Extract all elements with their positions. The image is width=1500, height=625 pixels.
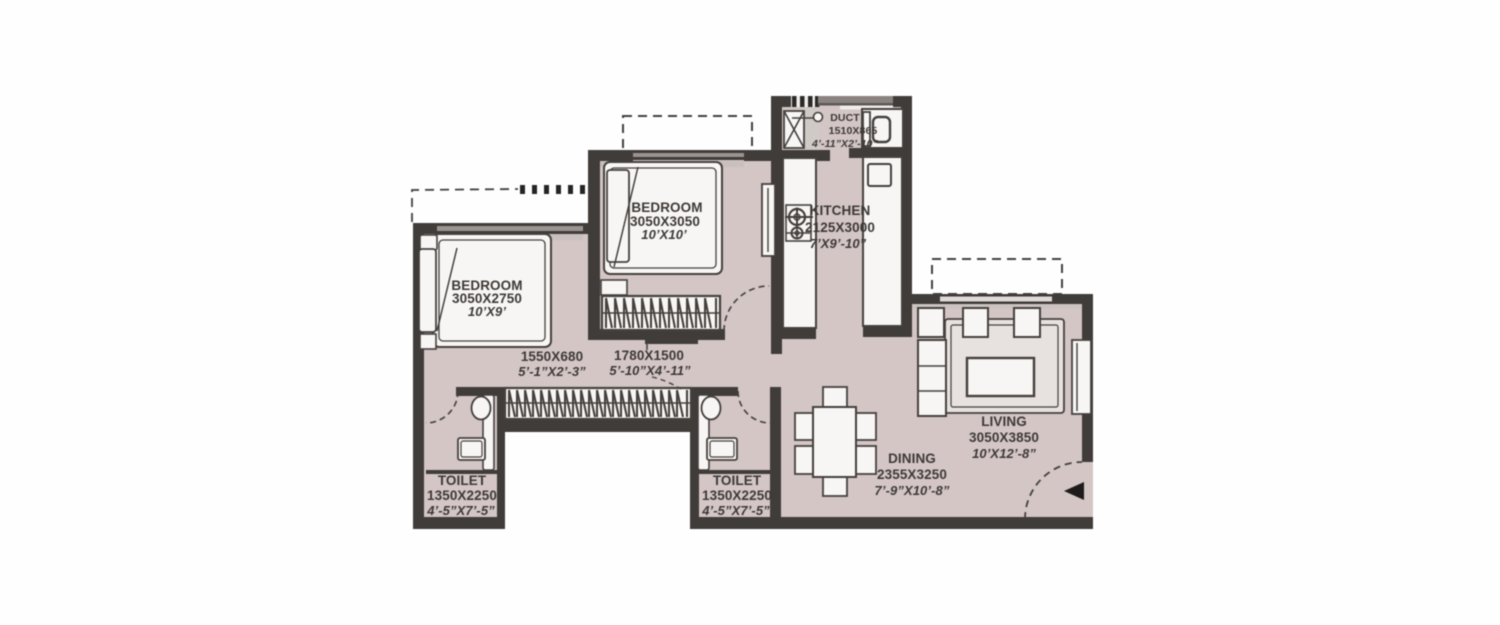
svg-text:5’-10”X4’-11”: 5’-10”X4’-11” bbox=[609, 363, 691, 378]
svg-text:10’X10’: 10’X10’ bbox=[641, 227, 687, 242]
svg-text:TOILET: TOILET bbox=[438, 473, 487, 488]
svg-text:2355X3250: 2355X3250 bbox=[877, 467, 947, 482]
svg-text:1350X2250: 1350X2250 bbox=[702, 488, 772, 503]
svg-text:10’X12’-8”: 10’X12’-8” bbox=[972, 446, 1036, 461]
svg-text:1350X2250: 1350X2250 bbox=[427, 488, 497, 503]
svg-text:5’-1”X2’-3”: 5’-1”X2’-3” bbox=[518, 364, 586, 379]
svg-text:4’-11”X2’-10”: 4’-11”X2’-10” bbox=[811, 138, 879, 150]
svg-text:1550X680: 1550X680 bbox=[521, 349, 583, 364]
svg-text:4’-5”X7’-5”: 4’-5”X7’-5” bbox=[701, 503, 770, 518]
svg-text:4’-5”X7’-5”: 4’-5”X7’-5” bbox=[426, 503, 495, 518]
svg-text:DINING: DINING bbox=[888, 451, 936, 466]
svg-text:BEDROOM: BEDROOM bbox=[631, 200, 702, 215]
svg-text:DUCT: DUCT bbox=[830, 112, 860, 124]
svg-text:7’X9’-10”: 7’X9’-10” bbox=[810, 236, 867, 251]
svg-text:3050X3850: 3050X3850 bbox=[969, 430, 1039, 445]
svg-text:7’-9”X10’-8”: 7’-9”X10’-8” bbox=[875, 483, 950, 498]
svg-text:1510X865: 1510X865 bbox=[829, 125, 878, 137]
svg-text:10’X9’: 10’X9’ bbox=[468, 304, 506, 319]
svg-text:2125X3000: 2125X3000 bbox=[805, 220, 875, 235]
svg-text:TOILET: TOILET bbox=[713, 473, 762, 488]
svg-text:LIVING: LIVING bbox=[981, 414, 1027, 429]
svg-text:KITCHEN: KITCHEN bbox=[810, 203, 871, 218]
svg-text:1780X1500: 1780X1500 bbox=[614, 348, 684, 363]
